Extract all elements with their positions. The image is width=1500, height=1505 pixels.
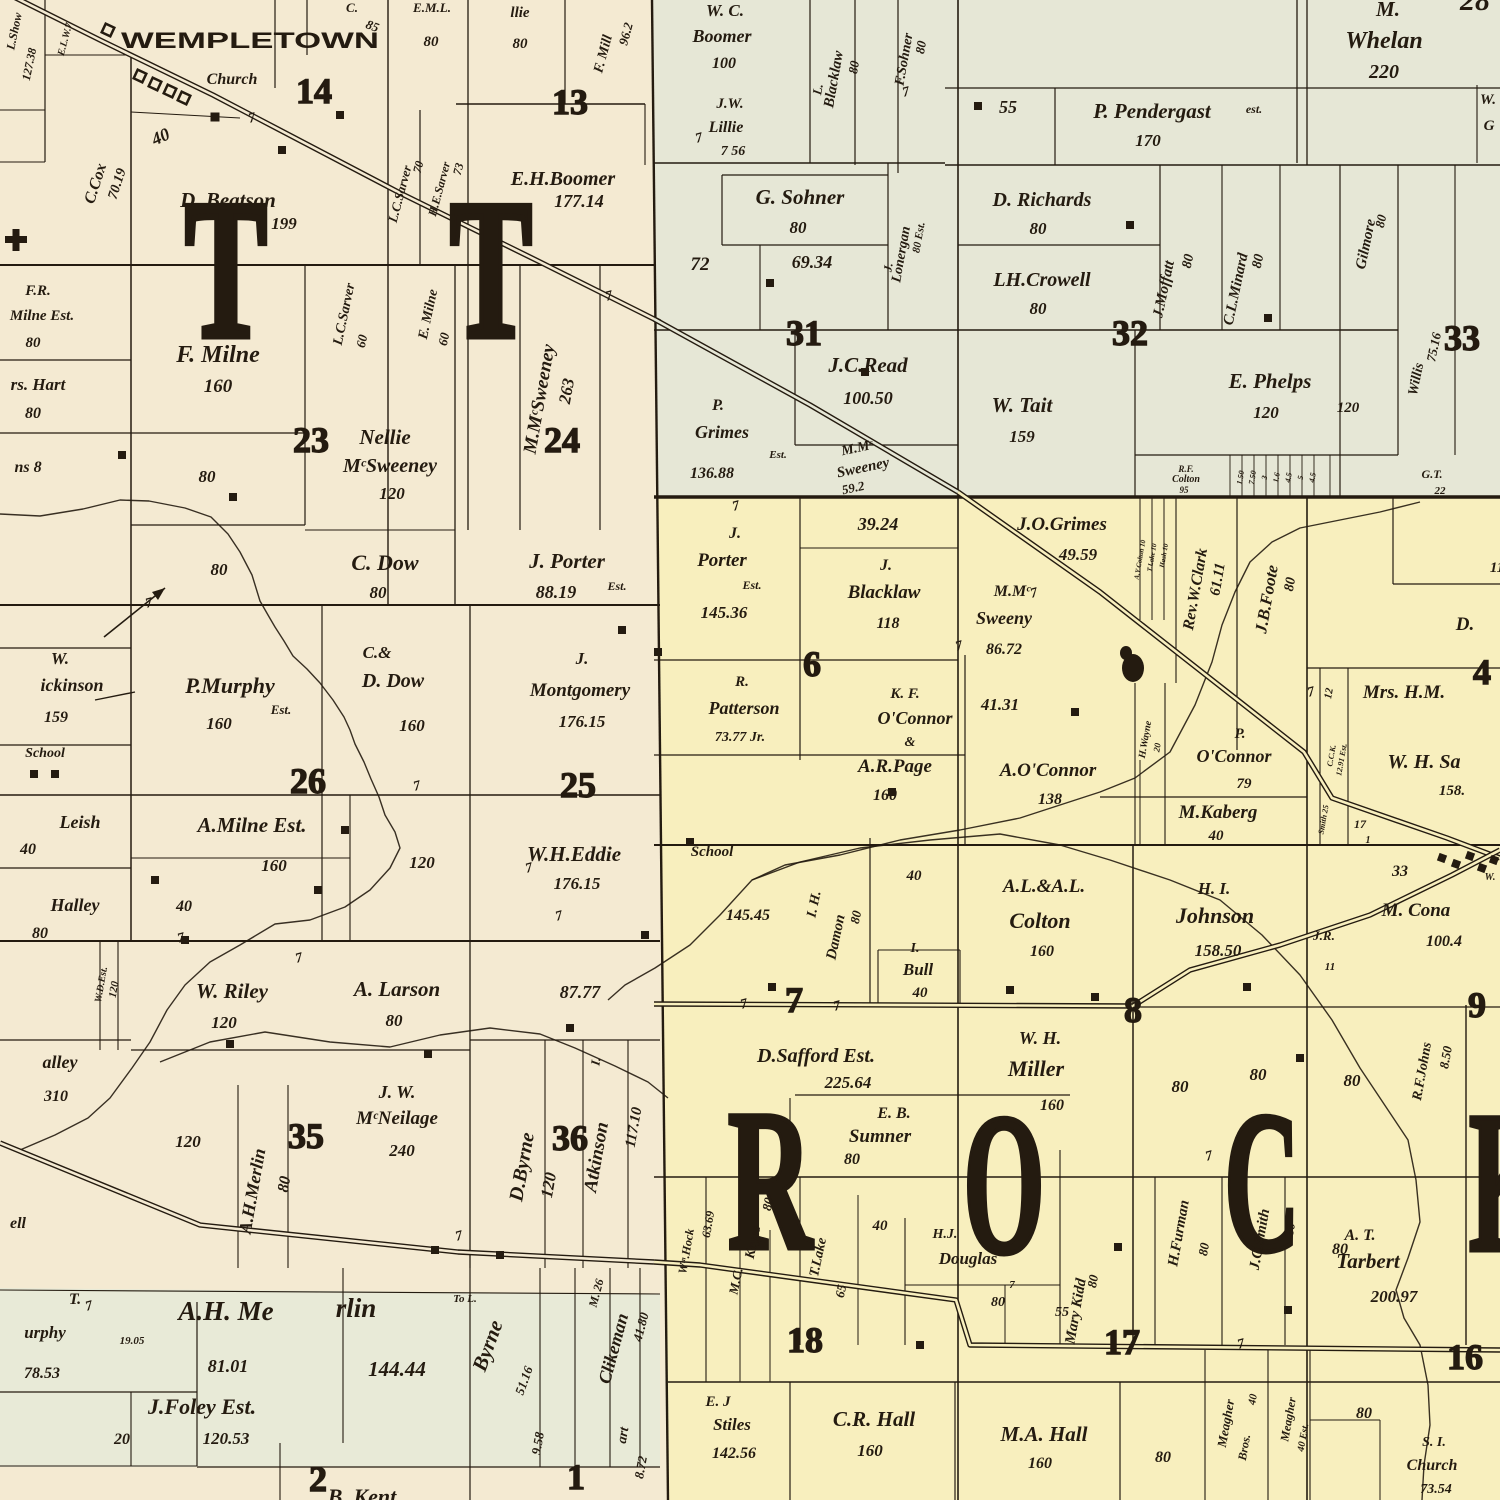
svg-text:18: 18 [787,1320,823,1360]
svg-text:Est.: Est. [270,702,292,717]
svg-text:79: 79 [1237,776,1253,792]
svg-text:160: 160 [1040,1097,1064,1114]
svg-text:I.: I. [910,941,920,956]
svg-text:200.97: 200.97 [1370,1287,1419,1306]
svg-text:est.: est. [1246,102,1262,116]
svg-text:4.5: 4.5 [1307,472,1318,484]
svg-text:H. I.: H. I. [1197,879,1231,898]
svg-text:145.36: 145.36 [701,603,748,622]
svg-text:80: 80 [25,405,41,422]
svg-text:ell: ell [10,1215,27,1232]
svg-text:MᶜSweeney: MᶜSweeney [342,455,437,477]
svg-text:J.: J. [575,649,589,668]
svg-text:80: 80 [1172,1077,1190,1096]
svg-text:Montgomery: Montgomery [529,680,631,701]
svg-text:120.53: 120.53 [203,1429,250,1448]
svg-text:ickinson: ickinson [40,675,103,695]
svg-text:K: K [1469,1072,1500,1295]
svg-text:40: 40 [912,985,929,1001]
svg-text:Sweeny: Sweeny [976,608,1033,628]
svg-text:J.W.: J.W. [715,96,743,112]
svg-text:80: 80 [275,1175,295,1194]
svg-text:23: 23 [293,420,329,460]
svg-text:33: 33 [1444,318,1480,358]
svg-text:O'Connor: O'Connor [877,708,953,728]
svg-text:W. Riley: W. Riley [196,979,269,1003]
svg-text:73.54: 73.54 [1420,1482,1452,1497]
svg-text:87.77: 87.77 [560,982,602,1002]
svg-text:177.14: 177.14 [554,191,604,211]
svg-text:199: 199 [271,214,297,233]
svg-text:40: 40 [175,898,192,915]
svg-text:80: 80 [26,335,42,351]
svg-text:Bull: Bull [902,960,934,979]
svg-text:A.O'Connor: A.O'Connor [999,760,1097,781]
svg-text:Leish: Leish [58,812,100,832]
svg-text:80: 80 [386,1011,404,1030]
svg-text:E.H.Boomer: E.H.Boomer [510,168,616,190]
svg-text:22: 22 [1434,485,1447,497]
svg-text:rlin: rlin [336,1293,377,1323]
svg-text:41.31: 41.31 [980,695,1019,714]
svg-text:2: 2 [309,1459,327,1499]
svg-text:31: 31 [786,313,822,353]
svg-text:170: 170 [1135,131,1161,150]
svg-text:J. Porter: J. Porter [528,549,606,573]
svg-text:J.Foley Est.: J.Foley Est. [147,1394,256,1419]
svg-text:80: 80 [32,925,48,942]
svg-text:8: 8 [1124,990,1142,1030]
svg-text:20: 20 [113,1431,130,1448]
svg-text:100.50: 100.50 [843,388,893,408]
svg-text:80: 80 [1155,1449,1171,1466]
svg-text:J.R.: J.R. [1312,928,1335,943]
svg-text:55: 55 [999,97,1017,117]
svg-text:13: 13 [552,82,588,122]
svg-text:176.15: 176.15 [559,712,606,731]
svg-text:33: 33 [1391,863,1408,880]
svg-text:Sumner: Sumner [849,1126,912,1147]
svg-text:49.59: 49.59 [1058,545,1098,564]
svg-text:rs. Hart: rs. Hart [11,375,67,394]
svg-text:D. Beatson: D. Beatson [179,188,276,212]
svg-text:160: 160 [204,376,233,397]
svg-text:A. Larson: A. Larson [352,977,440,1001]
svg-text:80: 80 [1030,219,1048,238]
svg-text:M. Cona: M. Cona [1381,900,1451,921]
svg-text:T.: T. [69,1291,81,1308]
svg-text:Lillie: Lillie [708,119,744,136]
svg-text:88.19: 88.19 [536,582,577,602]
svg-text:80: 80 [424,34,440,50]
svg-text:M.: M. [1375,0,1400,21]
svg-text:120: 120 [409,853,435,872]
svg-text:J. W.: J. W. [378,1082,416,1102]
svg-text:16: 16 [1447,1337,1483,1377]
svg-text:Colton: Colton [1172,474,1200,485]
svg-text:Church: Church [207,71,258,88]
svg-text:M.Mᶜ: M.Mᶜ [993,583,1031,600]
svg-text:WEMPLETOWN: WEMPLETOWN [121,28,379,53]
svg-text:Nellie: Nellie [358,425,410,449]
svg-text:C.R. Hall: C.R. Hall [833,1407,915,1431]
svg-text:Grimes: Grimes [695,422,749,442]
svg-text:A.L.&A.L.: A.L.&A.L. [1002,876,1085,897]
svg-text:7: 7 [1009,1279,1015,1291]
svg-text:118: 118 [876,615,899,632]
svg-text:24: 24 [544,420,580,460]
svg-text:H.J.: H.J. [932,1227,958,1242]
svg-text:73.77 Jr.: 73.77 Jr. [715,730,765,745]
svg-text:Stiles: Stiles [713,1415,751,1434]
svg-text:F. Milne: F. Milne [175,342,260,368]
svg-text:Est.: Est. [606,579,626,593]
svg-text:80: 80 [1344,1071,1362,1090]
svg-text:E. B.: E. B. [876,1105,910,1122]
svg-text:llie: llie [510,5,530,21]
svg-text:Colton: Colton [1009,908,1070,933]
svg-text:Douglas: Douglas [938,1249,998,1268]
svg-text:81.01: 81.01 [208,1356,249,1376]
svg-text:80: 80 [790,218,808,237]
svg-text:80: 80 [199,467,217,486]
svg-text:W.H.Eddie: W.H.Eddie [527,842,621,866]
svg-text:D. Richards: D. Richards [992,189,1092,211]
svg-text:26: 26 [290,761,326,801]
svg-text:40: 40 [1208,828,1225,844]
svg-text:School: School [25,746,65,761]
svg-text:Johnson: Johnson [1175,903,1254,928]
svg-text:80: 80 [1356,1405,1372,1422]
svg-text:&: & [905,735,916,750]
svg-text:D.Safford Est.: D.Safford Est. [756,1045,875,1067]
svg-text:Porter: Porter [696,550,747,571]
svg-text:M.Kaberg: M.Kaberg [1178,802,1258,823]
svg-text:A.H. Me: A.H. Me [176,1296,273,1326]
svg-text:176.15: 176.15 [554,874,601,893]
svg-text:36: 36 [552,1118,588,1158]
svg-text:urphy: urphy [24,1323,66,1342]
svg-text:32: 32 [1112,313,1148,353]
svg-text:P. Pendergast: P. Pendergast [1092,99,1212,123]
svg-text:W.: W. [1480,92,1496,108]
svg-text:80: 80 [513,36,529,52]
svg-text:160: 160 [1028,1455,1052,1472]
svg-text:W. C.: W. C. [706,1,744,20]
svg-text:P.: P. [1235,726,1246,742]
svg-text:A. T.: A. T. [1344,1227,1376,1244]
svg-text:80: 80 [844,1151,860,1168]
svg-text:100: 100 [712,55,736,72]
svg-text:160: 160 [857,1441,883,1460]
svg-text:225.64: 225.64 [824,1073,872,1092]
svg-text:80: 80 [1250,1065,1268,1084]
svg-text:1: 1 [567,1457,585,1497]
svg-text:1: 1 [1366,835,1371,846]
svg-text:To L.: To L. [453,1293,476,1305]
svg-text:39.24: 39.24 [857,514,899,534]
svg-text:P.: P. [711,397,724,414]
svg-text:11: 11 [1490,560,1500,576]
svg-text:69.34: 69.34 [792,252,833,272]
svg-text:120: 120 [1337,400,1360,416]
svg-text:W.: W. [51,649,69,668]
svg-text:G. Sohner: G. Sohner [756,185,846,209]
svg-text:4.5: 4.5 [1283,472,1294,484]
svg-text:R.: R. [734,674,749,690]
svg-text:144.44: 144.44 [368,1357,426,1381]
svg-text:220: 220 [1368,61,1399,83]
svg-text:MᶜNeilage: MᶜNeilage [355,1108,438,1129]
svg-text:95: 95 [1180,485,1190,495]
svg-text:E.M.L.: E.M.L. [412,0,451,15]
svg-text:9: 9 [1468,985,1486,1025]
svg-text:40: 40 [872,1218,889,1234]
svg-text:78.53: 78.53 [24,1365,60,1382]
svg-text:W.: W. [1485,872,1496,883]
svg-text:142.56: 142.56 [712,1445,756,1462]
svg-text:145.45: 145.45 [726,907,770,924]
svg-text:Blacklaw: Blacklaw [847,582,921,603]
svg-text:160: 160 [261,856,287,875]
svg-text:80: 80 [991,1295,1005,1310]
svg-text:Est.: Est. [741,578,761,592]
svg-text:J.: J. [728,525,741,542]
svg-text:4: 4 [1473,652,1491,692]
svg-text:Whelan: Whelan [1345,28,1422,54]
svg-text:Milne Est.: Milne Est. [9,308,74,324]
svg-text:158.50: 158.50 [1195,941,1242,960]
svg-text:E. Phelps: E. Phelps [1228,369,1312,393]
svg-text:158.: 158. [1439,783,1465,799]
svg-text:E. J: E. J [704,1394,731,1410]
svg-text:G.T.: G.T. [1422,467,1443,481]
svg-text:A.R.Page: A.R.Page [857,756,932,777]
svg-text:120: 120 [211,1013,237,1032]
svg-text:11: 11 [1325,961,1335,973]
svg-text:T: T [450,159,532,379]
svg-text:G: G [1484,118,1495,134]
svg-text:28: 28 [1459,0,1490,17]
svg-text:R: R [728,1068,814,1292]
svg-text:136.88: 136.88 [690,465,734,482]
svg-text:17: 17 [1104,1322,1140,1362]
svg-text:M.A. Hall: M.A. Hall [1000,1422,1088,1446]
svg-text:160: 160 [206,714,232,733]
svg-text:F.R.: F.R. [24,283,51,299]
svg-text:14: 14 [296,71,332,111]
svg-text:Miller: Miller [1007,1056,1065,1081]
svg-text:School: School [691,844,734,860]
svg-text:Patterson: Patterson [707,698,779,718]
svg-text:160: 160 [1030,943,1054,960]
svg-text:159: 159 [1009,427,1035,446]
svg-text:35: 35 [288,1116,324,1156]
svg-text:240: 240 [388,1141,415,1160]
svg-text:LH.Crowell: LH.Crowell [992,269,1091,291]
svg-text:25: 25 [560,765,596,805]
svg-text:120: 120 [379,484,405,503]
svg-text:D. Dow: D. Dow [361,670,425,692]
svg-text:Boomer: Boomer [691,26,752,46]
svg-text:W. H. Sa: W. H. Sa [1388,751,1461,773]
svg-text:J.: J. [879,557,892,574]
svg-text:L.: L. [809,82,826,97]
svg-text:120: 120 [1253,403,1279,422]
svg-text:138: 138 [1038,791,1062,808]
svg-text:Tarbert: Tarbert [1336,1249,1401,1273]
svg-text:80: 80 [370,583,388,602]
svg-text:160: 160 [399,716,425,735]
svg-text:R.F.: R.F. [1177,464,1193,474]
svg-text:86.72: 86.72 [986,641,1022,658]
svg-text:B. Kent: B. Kent [327,1484,397,1500]
svg-text:120: 120 [175,1132,201,1151]
svg-text:1.6: 1.6 [1271,472,1282,483]
svg-text:W. H.: W. H. [1019,1028,1061,1048]
svg-text:7 56: 7 56 [721,144,746,159]
svg-text:Est.: Est. [768,449,786,461]
svg-text:80: 80 [211,560,229,579]
svg-text:D.: D. [1455,614,1474,635]
svg-text:A.Milne Est.: A.Milne Est. [195,813,306,837]
svg-text:40: 40 [19,841,36,858]
svg-text:S. I.: S. I. [1422,1435,1446,1450]
svg-text:159: 159 [44,709,68,726]
svg-text:80: 80 [1030,299,1048,318]
svg-text:K. F.: K. F. [889,686,919,702]
svg-text:100.4: 100.4 [1426,933,1462,950]
svg-text:O'Connor: O'Connor [1196,746,1272,766]
svg-text:C.: C. [346,0,358,15]
svg-text:310: 310 [43,1088,68,1105]
svg-text:P.Murphy: P.Murphy [184,673,275,698]
svg-text:7: 7 [785,980,803,1020]
svg-text:Halley: Halley [50,895,101,915]
svg-text:alley: alley [43,1052,79,1072]
svg-text:ns 8: ns 8 [14,459,41,476]
svg-text:80: 80 [1282,576,1299,592]
svg-text:W. Tait: W. Tait [992,393,1054,417]
svg-text:C.&: C.& [363,643,393,662]
svg-text:72: 72 [691,254,711,275]
svg-text:19.05: 19.05 [120,1335,145,1347]
svg-text:6: 6 [803,644,821,684]
svg-text:Church: Church [1407,1457,1458,1474]
svg-text:17: 17 [1354,817,1367,831]
svg-text:C. Dow: C. Dow [351,550,419,575]
svg-text:Mrs. H.M.: Mrs. H.M. [1362,682,1445,703]
svg-text:40: 40 [906,868,923,884]
svg-text:J.O.Grimes: J.O.Grimes [1016,514,1107,535]
